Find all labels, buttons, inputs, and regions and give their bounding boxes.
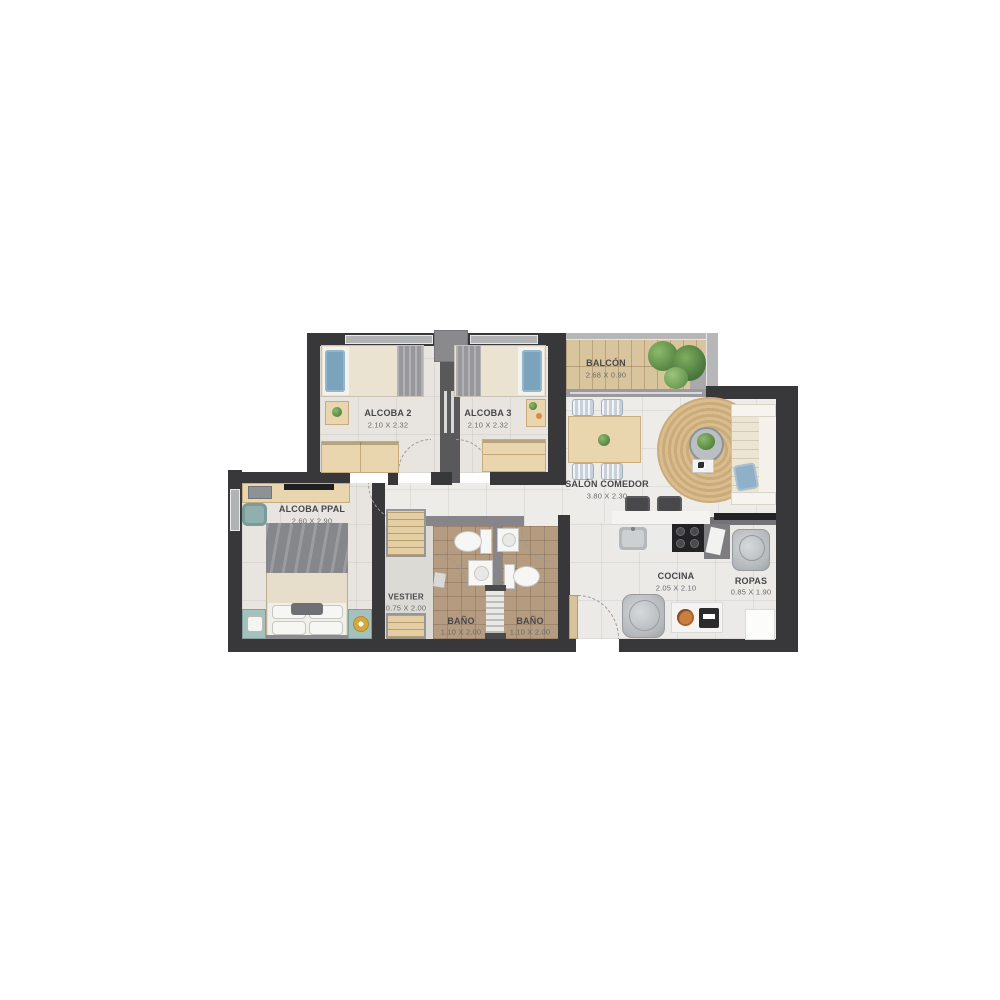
room-label-bano2: BAÑO — [516, 616, 543, 626]
sofa-chaise — [759, 417, 776, 492]
laptop — [248, 486, 272, 499]
wall — [307, 333, 320, 483]
room-dims-bano1: 1.10 X 2.00 — [441, 628, 482, 637]
room-dims-vestier: 0.75 X 2.00 — [386, 604, 427, 613]
room-dims-alcoba-ppal: 2.60 X 2.90 — [292, 517, 333, 526]
window — [345, 335, 433, 344]
dresser — [482, 439, 546, 472]
dining-chair — [572, 463, 594, 480]
dresser — [321, 441, 399, 473]
closet-door-slit — [444, 391, 447, 433]
closet-shelf — [386, 613, 426, 639]
floor-plan-image: BALCÓN 2.68 X 0.90 ALCOBA 2 2.10 X 2.32 … — [0, 0, 1000, 1000]
wall — [228, 639, 576, 652]
dining-chair — [601, 463, 623, 480]
sink-basin — [474, 566, 489, 581]
blanket-gray — [266, 523, 348, 573]
blanket-gray — [456, 346, 481, 396]
room-label-alcoba3: ALCOBA 3 — [464, 408, 511, 418]
room-label-salon: SALÓN COMEDOR — [565, 479, 649, 489]
laundry-door — [745, 609, 775, 640]
cup — [536, 413, 542, 419]
lamp — [247, 616, 263, 632]
sofa-armrest — [731, 492, 776, 505]
balcony-railing-right — [706, 333, 718, 391]
room-label-ropas: ROPAS — [735, 576, 767, 586]
room-dims-alcoba3: 2.10 X 2.32 — [468, 421, 509, 430]
wall — [431, 472, 452, 485]
room-label-alcoba-ppal: ALCOBA PPAL — [279, 504, 345, 514]
closet-door-slit — [451, 391, 454, 433]
shower-cap — [485, 633, 506, 639]
room-dims-bano2: 1.10 X 2.00 — [510, 628, 551, 637]
bathroom-top-wall — [425, 516, 524, 526]
tv — [284, 484, 334, 490]
toilet-bowl — [454, 531, 482, 552]
desk-chair — [242, 503, 267, 526]
wall — [619, 639, 798, 652]
pillow — [272, 621, 306, 635]
headboard — [264, 635, 350, 639]
toilet-bowl — [513, 566, 540, 587]
room-label-vestier: VESTIER — [388, 593, 424, 602]
pillow-dark — [291, 603, 323, 615]
washing-machine-drum — [739, 535, 765, 561]
towel — [433, 572, 446, 587]
kitchen-sink-basin — [622, 530, 644, 547]
room-label-cocina: COCINA — [658, 571, 695, 581]
room-label-bano1: BAÑO — [447, 616, 474, 626]
wall — [490, 472, 566, 485]
room-label-balcon: BALCÓN — [586, 358, 626, 368]
toaster-oven-slot — [703, 614, 715, 619]
pillow-blue — [325, 350, 345, 392]
lamp-gold — [353, 616, 369, 632]
burner — [690, 539, 699, 548]
wall — [776, 386, 798, 652]
room-dims-cocina: 2.05 X 2.10 — [656, 584, 697, 593]
window — [470, 335, 538, 344]
balcony-railing-top — [566, 333, 718, 340]
plant-pot — [332, 407, 342, 417]
pizza-plate — [677, 609, 694, 626]
coffee-table-plant — [697, 433, 715, 450]
closet-shelf — [386, 509, 426, 557]
dining-chair — [572, 399, 594, 416]
plant-pot — [529, 402, 537, 410]
burner — [690, 527, 699, 536]
dining-chair — [601, 399, 623, 416]
room-dims-ropas: 0.85 X 1.90 — [731, 588, 772, 597]
sofa-armrest — [731, 404, 776, 417]
room-dims-alcoba2: 2.10 X 2.32 — [368, 421, 409, 430]
pillow — [309, 621, 343, 635]
pillow-blue — [522, 350, 542, 392]
tray-item — [698, 462, 706, 470]
tv-console — [714, 513, 776, 520]
window — [230, 489, 240, 531]
balcony-plant — [664, 367, 688, 389]
floor-plan: BALCÓN 2.68 X 0.90 ALCOBA 2 2.10 X 2.32 … — [228, 333, 798, 652]
sink-basin — [502, 533, 516, 547]
table-plant — [598, 434, 610, 446]
room-dims-salon: 3.80 X 2.30 — [587, 492, 628, 501]
blanket-gray — [397, 346, 423, 396]
burner — [676, 527, 685, 536]
refrigerator-ring — [629, 600, 660, 631]
room-label-alcoba2: ALCOBA 2 — [364, 408, 411, 418]
shower-floor — [486, 591, 504, 633]
room-dims-balcon: 2.68 X 0.90 — [586, 371, 627, 380]
sofa-pillow-blue — [733, 462, 759, 491]
wall — [548, 333, 566, 483]
balcony-sliding-door-glass — [570, 392, 702, 394]
entry-door-leaf — [569, 595, 578, 639]
faucet — [631, 527, 635, 531]
breakfast-bar — [612, 511, 710, 524]
burner — [676, 539, 685, 548]
